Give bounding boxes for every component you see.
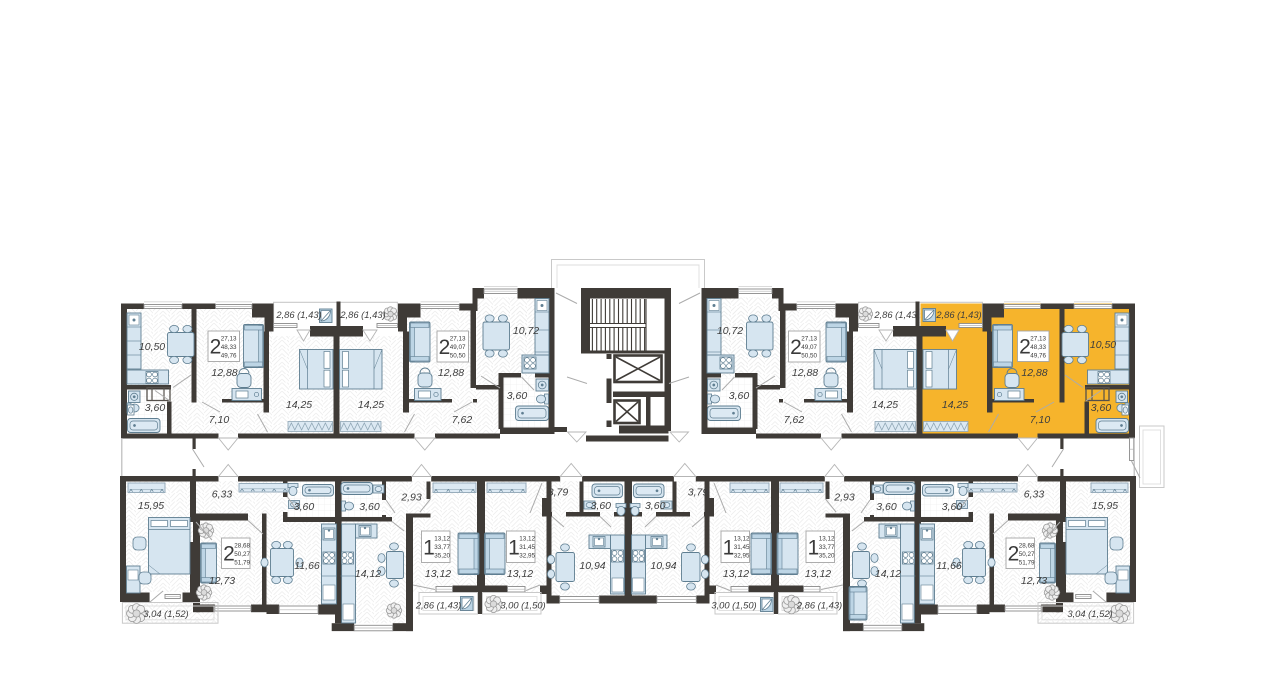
svg-text:3,60: 3,60	[507, 390, 528, 402]
svg-text:3,79: 3,79	[548, 487, 569, 499]
svg-text:3,60: 3,60	[145, 402, 166, 414]
svg-text:27,13: 27,13	[1030, 336, 1046, 343]
svg-text:13,12: 13,12	[723, 568, 749, 580]
svg-text:7,10: 7,10	[209, 414, 230, 426]
svg-text:13,12: 13,12	[805, 568, 831, 580]
svg-text:14,12: 14,12	[355, 568, 381, 580]
svg-text:27,13: 27,13	[450, 336, 466, 343]
svg-text:7,10: 7,10	[1030, 414, 1051, 426]
svg-text:50,50: 50,50	[801, 352, 817, 359]
svg-text:2,86 (1,43): 2,86 (1,43)	[935, 309, 981, 320]
svg-text:3,00 (1,50): 3,00 (1,50)	[500, 599, 545, 610]
svg-text:2: 2	[790, 336, 802, 359]
svg-text:32,95: 32,95	[519, 552, 535, 559]
svg-text:28,68: 28,68	[234, 543, 250, 550]
svg-text:6,33: 6,33	[1024, 489, 1045, 501]
svg-text:2,86 (1,43): 2,86 (1,43)	[796, 599, 842, 610]
svg-text:11,66: 11,66	[294, 560, 320, 572]
svg-text:6,33: 6,33	[212, 489, 233, 501]
svg-text:28,68: 28,68	[1019, 543, 1035, 550]
svg-text:2: 2	[1008, 543, 1020, 566]
svg-text:2,86 (1,43): 2,86 (1,43)	[339, 309, 385, 320]
svg-text:50,27: 50,27	[234, 551, 250, 558]
svg-text:2: 2	[223, 543, 235, 566]
svg-text:49,07: 49,07	[801, 344, 817, 351]
svg-text:15,95: 15,95	[138, 500, 164, 512]
svg-text:48,33: 48,33	[221, 344, 237, 351]
svg-text:14,25: 14,25	[358, 399, 384, 411]
svg-text:3,60: 3,60	[729, 390, 750, 402]
svg-text:35,20: 35,20	[819, 552, 835, 559]
svg-text:31,45: 31,45	[519, 544, 535, 551]
svg-text:2,86 (1,43): 2,86 (1,43)	[275, 309, 321, 320]
svg-text:12,88: 12,88	[792, 367, 818, 379]
svg-text:7,62: 7,62	[784, 414, 805, 426]
svg-text:2,93: 2,93	[400, 492, 422, 504]
svg-text:12,73: 12,73	[1021, 575, 1047, 587]
svg-text:12,73: 12,73	[209, 575, 235, 587]
svg-text:50,27: 50,27	[1019, 551, 1035, 558]
svg-text:32,95: 32,95	[734, 552, 750, 559]
svg-text:51,79: 51,79	[234, 559, 250, 566]
svg-text:11,66: 11,66	[936, 560, 962, 572]
svg-text:2,86 (1,43): 2,86 (1,43)	[415, 599, 461, 610]
svg-text:2: 2	[210, 336, 222, 359]
svg-text:3,04 (1,52): 3,04 (1,52)	[143, 608, 188, 619]
svg-text:35,20: 35,20	[434, 552, 450, 559]
svg-text:7,62: 7,62	[452, 414, 473, 426]
svg-text:13,12: 13,12	[819, 536, 835, 543]
svg-text:12,88: 12,88	[211, 367, 237, 379]
svg-text:51,79: 51,79	[1019, 559, 1035, 566]
svg-text:10,94: 10,94	[650, 560, 676, 572]
svg-text:10,50: 10,50	[1090, 339, 1116, 351]
svg-text:27,13: 27,13	[801, 336, 817, 343]
svg-text:3,60: 3,60	[359, 501, 380, 513]
svg-text:13,12: 13,12	[734, 536, 750, 543]
svg-text:2: 2	[1019, 336, 1031, 359]
svg-text:33,77: 33,77	[819, 544, 835, 551]
svg-text:49,76: 49,76	[221, 352, 237, 359]
svg-text:10,72: 10,72	[513, 325, 539, 337]
svg-text:10,50: 10,50	[139, 341, 165, 353]
svg-text:12,88: 12,88	[438, 367, 464, 379]
svg-text:2,93: 2,93	[833, 492, 855, 504]
svg-text:49,76: 49,76	[1030, 352, 1046, 359]
svg-text:12,88: 12,88	[1021, 367, 1047, 379]
svg-text:13,12: 13,12	[425, 568, 451, 580]
svg-text:14,25: 14,25	[286, 399, 312, 411]
svg-text:10,72: 10,72	[717, 325, 743, 337]
svg-text:13,12: 13,12	[434, 536, 450, 543]
svg-text:1: 1	[423, 537, 435, 560]
svg-text:3,60: 3,60	[591, 500, 612, 512]
svg-text:50,50: 50,50	[450, 352, 466, 359]
svg-text:1: 1	[723, 537, 735, 560]
svg-text:48,33: 48,33	[1030, 344, 1046, 351]
svg-text:49,07: 49,07	[450, 344, 466, 351]
svg-text:1: 1	[808, 537, 820, 560]
svg-text:14,12: 14,12	[875, 568, 901, 580]
svg-text:31,45: 31,45	[734, 544, 750, 551]
svg-text:2: 2	[439, 336, 451, 359]
svg-text:10,94: 10,94	[579, 560, 605, 572]
svg-text:3,60: 3,60	[1091, 402, 1112, 414]
svg-text:14,25: 14,25	[942, 399, 968, 411]
svg-text:3,79: 3,79	[688, 487, 709, 499]
svg-text:3,00 (1,50): 3,00 (1,50)	[711, 599, 756, 610]
svg-text:33,77: 33,77	[434, 544, 450, 551]
svg-text:14,25: 14,25	[872, 399, 898, 411]
svg-text:3,60: 3,60	[942, 501, 963, 513]
svg-text:3,04 (1,52): 3,04 (1,52)	[1067, 608, 1112, 619]
svg-text:1: 1	[508, 537, 520, 560]
svg-text:3,60: 3,60	[876, 501, 897, 513]
svg-text:27,13: 27,13	[221, 336, 237, 343]
svg-text:15,95: 15,95	[1092, 500, 1118, 512]
svg-text:13,12: 13,12	[519, 536, 535, 543]
svg-text:3,60: 3,60	[294, 501, 315, 513]
svg-text:2,86 (1,43): 2,86 (1,43)	[873, 309, 919, 320]
svg-text:13,12: 13,12	[507, 568, 533, 580]
svg-text:3,60: 3,60	[645, 500, 666, 512]
